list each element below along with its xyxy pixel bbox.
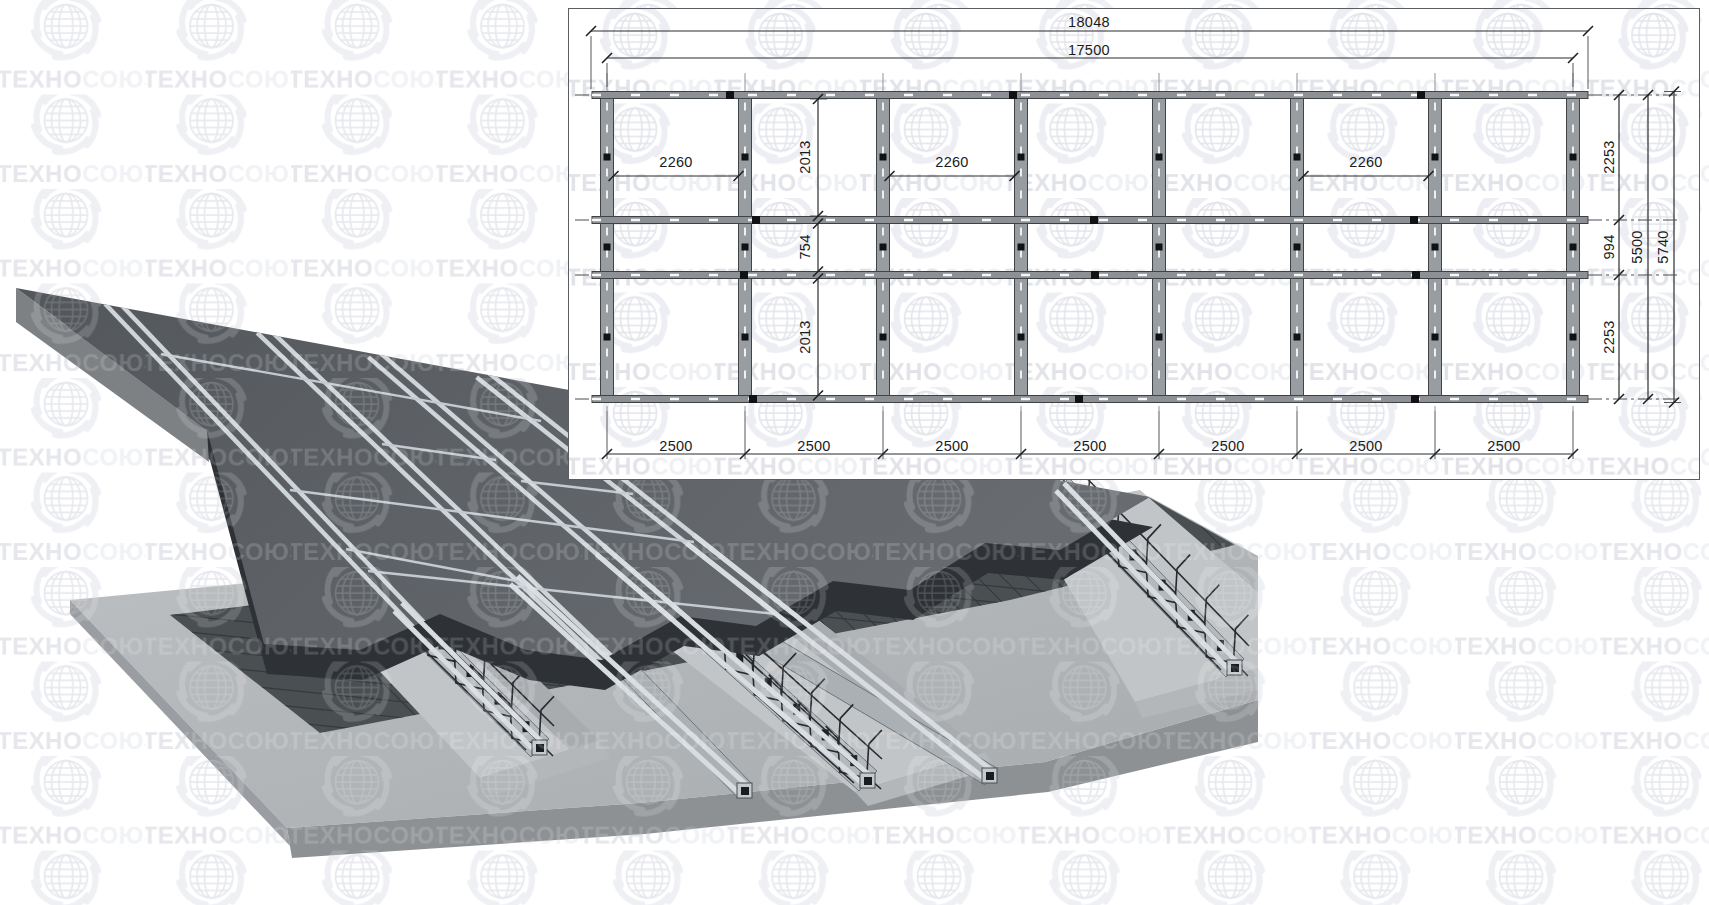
- dim-band-gap-label: 754: [798, 234, 813, 259]
- dim-bay-width-label: 2500: [1349, 439, 1382, 454]
- dim-overall-width-label: 18048: [1068, 15, 1110, 30]
- dim-bay-width-label: 2500: [659, 439, 692, 454]
- plan-drawing-box: 18048 17500 2260 2260 2260 2013 754 2013…: [568, 8, 1700, 480]
- dim-bay-width-label: 2500: [1487, 439, 1520, 454]
- dim-rail-spacing-label: 994: [1602, 234, 1617, 259]
- dim-bay-width-label: 2500: [1073, 439, 1106, 454]
- dim-overall-depth-label: 5740: [1656, 230, 1671, 263]
- dim-rail-length-label: 17500: [1068, 43, 1110, 58]
- dim-bay-width-label: 2500: [1211, 439, 1244, 454]
- dim-post-spacing-label: 2260: [1349, 155, 1382, 170]
- plan-linework: [569, 9, 1699, 479]
- dim-rail-spacing-label: 2253: [1602, 320, 1617, 353]
- dim-rails-extent-label: 5500: [1630, 230, 1645, 263]
- document-page: ТЕХНОСОЮЗ®: [0, 0, 1709, 905]
- dim-band-height-label: 2013: [798, 140, 813, 173]
- dim-bay-width-label: 2500: [797, 439, 830, 454]
- dim-band-height-label: 2013: [798, 320, 813, 353]
- dim-post-spacing-label: 2260: [659, 155, 692, 170]
- dim-post-spacing-label: 2260: [935, 155, 968, 170]
- dim-rail-spacing-label: 2253: [1602, 140, 1617, 173]
- dim-bay-width-label: 2500: [935, 439, 968, 454]
